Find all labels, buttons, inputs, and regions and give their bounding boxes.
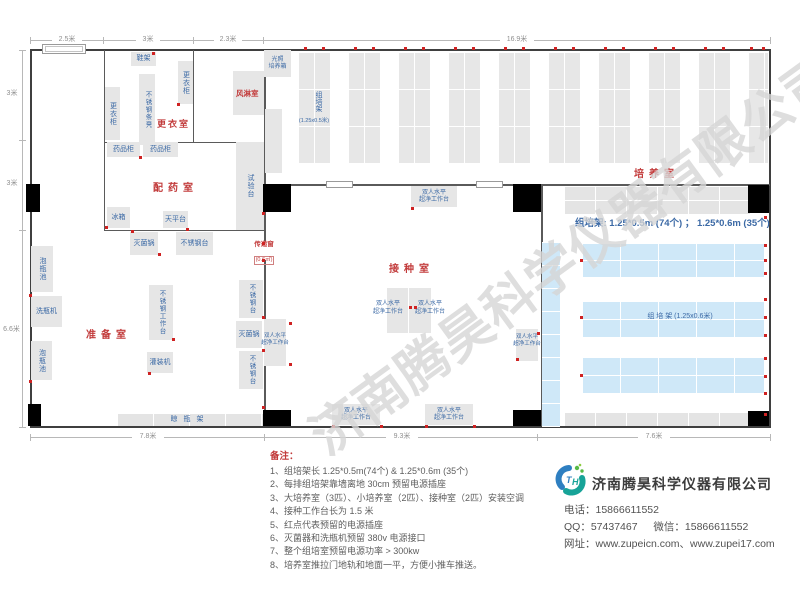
power-socket-dot: [572, 47, 575, 50]
power-socket-dot: [152, 52, 155, 55]
floor-plan-canvas: 2.5米 3米 2.3米 16.9米 3米 3米 6.6米 7.8米 9.3米 …: [0, 0, 800, 600]
equip-clean-bench-bottom-1: 双人水平 超净工作台: [332, 404, 380, 425]
note-item: 4、接种工作台长为 1.5 米: [270, 505, 535, 518]
power-socket-dot: [750, 47, 753, 50]
notes-title: 备注：: [270, 448, 535, 462]
clean-bench-line1: 双人水平: [344, 408, 368, 415]
culture-rack-column: [448, 52, 480, 163]
power-socket-dot: [158, 253, 161, 256]
notes-list: 1、组培架长 1.25*0.5m(74个) & 1.25*0.6m (35个) …: [270, 465, 535, 572]
power-socket-dot: [425, 425, 428, 428]
dim-label-top-4: 16.9米: [500, 36, 534, 44]
equip-ss-table: 不锈钢台: [176, 232, 213, 255]
web-value-1: www.zupeicn.com: [596, 538, 680, 550]
power-socket-dot: [580, 374, 583, 377]
door-block: [28, 404, 41, 426]
power-socket-dot: [762, 47, 765, 50]
dim-label-bottom-1: 7.8米: [132, 433, 164, 441]
power-socket-dot: [764, 392, 767, 395]
equip-medicine-cabinet-2: 药品柜: [143, 142, 178, 157]
power-socket-dot: [372, 47, 375, 50]
web-separator: 、: [680, 538, 691, 550]
power-socket-dot: [105, 226, 108, 229]
power-socket-dot: [764, 375, 767, 378]
clean-bench-left-label: 双人水平 超净工作台: [250, 333, 300, 346]
entry-door-symbol-inner: [45, 46, 83, 52]
note-item: 5、红点代表预留的电源插座: [270, 519, 535, 532]
power-socket-dot: [411, 207, 414, 210]
culture-shelf-top: [564, 186, 751, 214]
power-socket-dot: [404, 47, 407, 50]
power-socket-dot: [764, 357, 767, 360]
dim-line-left: [22, 50, 23, 428]
wechat-value: 15866611552: [685, 521, 748, 533]
power-socket-dot: [177, 103, 180, 106]
sliding-door-symbol: [476, 181, 503, 188]
power-socket-dot: [289, 363, 292, 366]
power-socket-dot: [764, 316, 767, 319]
culture-rack-column: [648, 52, 680, 163]
power-socket-dot: [604, 47, 607, 50]
clean-bench-line1: 双人水平: [422, 190, 446, 197]
power-socket-dot: [414, 306, 417, 309]
culture-rack-column: [398, 52, 430, 163]
equip-medicine-cabinet: 药品柜: [107, 142, 140, 157]
dim-tick: [19, 427, 26, 428]
culture-rack-column: [498, 52, 530, 163]
power-socket-dot: [764, 259, 767, 262]
notes-block: 备注： 1、组培架长 1.25*0.5m(74个) & 1.25*0.6m (3…: [270, 448, 535, 572]
power-socket-dot: [764, 298, 767, 301]
dim-tick: [770, 434, 771, 441]
power-socket-dot: [522, 47, 525, 50]
power-socket-dot: [704, 47, 707, 50]
power-socket-dot: [289, 322, 292, 325]
power-socket-dot: [262, 349, 265, 352]
power-socket-dot: [537, 332, 540, 335]
clean-bench-center1-label: 双人水平 超净工作台: [368, 301, 408, 316]
power-socket-dot: [672, 47, 675, 50]
dim-label-bottom-3: 7.6米: [638, 433, 670, 441]
note-item: 2、每排组培架靠墙离地 30cm 预留电源插座: [270, 478, 535, 491]
clean-bench-line1: 双人水平: [264, 333, 286, 339]
power-socket-dot: [764, 413, 767, 416]
dim-label-left-2: 3米: [4, 180, 20, 188]
company-phone-line: 电话：15866611552: [564, 502, 659, 517]
power-socket-dot: [764, 272, 767, 275]
equip-clean-bench-bottom-2: 双人水平 超净工作台: [425, 404, 473, 425]
power-socket-dot: [764, 244, 767, 247]
dim-tick: [264, 434, 265, 441]
power-socket-dot: [262, 316, 265, 319]
room-label-dispensing: 配药室: [153, 179, 198, 194]
power-socket-dot: [262, 259, 265, 262]
dim-tick: [19, 50, 26, 51]
clean-bench-line1: 双人水平: [418, 301, 442, 307]
note-item: 1、组培架长 1.25*0.5m(74个) & 1.25*0.6m (35个): [270, 465, 535, 478]
clean-bench-line2: 超净工作台: [513, 341, 541, 347]
culture-rack-column: [548, 52, 580, 163]
dim-tick: [19, 230, 26, 231]
note-item: 7、整个组培室预留电源功率 > 300kw: [270, 545, 535, 558]
wall-inner-v1: [104, 50, 105, 230]
equip-light-incubator-line1: 光照: [271, 57, 283, 64]
equip-fridge: 冰箱: [107, 207, 130, 228]
power-socket-dot: [580, 316, 583, 319]
clean-bench-line2: 超净工作台: [261, 340, 289, 346]
power-socket-dot: [516, 358, 519, 361]
rack-right-label: 组 培 架 (1.25x0.6米): [620, 313, 740, 321]
equip-ss-table-3: 不锈钢台: [239, 351, 263, 389]
power-socket-dot: [332, 425, 335, 428]
power-socket-dot: [764, 216, 767, 219]
room-label-changing: 更衣室: [157, 117, 190, 130]
power-socket-dot: [580, 259, 583, 262]
dim-tick: [263, 37, 264, 44]
equip-ss-table-2: 不锈钢台: [239, 280, 263, 318]
dim-tick: [537, 434, 538, 441]
equip-bottle-pool-2: 泡瓶池: [31, 341, 52, 380]
room-label-culture: 培养室: [634, 165, 679, 180]
clean-bench-line2: 超净工作台: [415, 309, 445, 315]
power-socket-dot: [409, 306, 412, 309]
clean-bench-line1: 双人水平: [376, 301, 400, 307]
dim-tick: [103, 37, 104, 44]
web-label: 网址：: [564, 538, 596, 550]
power-socket-dot: [139, 156, 142, 159]
culture-rack-blue-row-1: [582, 243, 764, 277]
logo-letter-h: H: [572, 477, 579, 487]
phone-label: 电话：: [564, 504, 596, 516]
power-socket-dot: [473, 425, 476, 428]
company-qq-line: QQ：57437467 微信：15866611552: [564, 519, 748, 534]
sliding-door-symbol: [326, 181, 353, 188]
equip-light-incubator: 光照 培养箱: [264, 50, 291, 77]
door-block: [263, 410, 291, 426]
equip-wardrobe-2: 更衣柜: [178, 61, 193, 104]
culture-shelf-bottom: [564, 412, 751, 426]
company-logo: T H: [554, 462, 588, 498]
power-socket-dot: [354, 47, 357, 50]
dim-label-top-2: 3米: [136, 36, 160, 44]
equip-wardrobe: 更衣柜: [105, 87, 120, 140]
culture-rack-blue-row-3: [582, 357, 764, 394]
note-item: 6、灭菌器和洗瓶机预留 380v 电源接口: [270, 532, 535, 545]
power-socket-dot: [654, 47, 657, 50]
wechat-label: 微信：: [653, 521, 685, 533]
rack-column-size-label: (1.25x0.5米): [293, 118, 335, 126]
dim-label-top-3: 2.3米: [214, 36, 242, 44]
clean-bench-line2: 超净工作台: [419, 197, 449, 204]
dim-tick: [30, 434, 31, 441]
power-socket-dot: [262, 406, 265, 409]
equip-drying-rack-label: 晾瓶架: [150, 416, 230, 424]
wall-outer-top: [30, 49, 771, 52]
equip-steel-bench: 不锈钢条凳: [139, 74, 155, 145]
dim-tick: [30, 37, 31, 44]
equip-clean-bench-top: 双人水平 超净工作台: [411, 186, 457, 207]
power-socket-dot: [622, 47, 625, 50]
note-item: 3、大培养室（3匹）、小培养室（2匹）、接种室（2匹）安装空调: [270, 492, 535, 505]
power-socket-dot: [148, 372, 151, 375]
power-socket-dot: [29, 380, 32, 383]
power-socket-dot: [131, 230, 134, 233]
power-socket-dot: [186, 228, 189, 231]
clean-bench-line1: 双人水平: [516, 334, 538, 340]
clean-bench-line1: 双人水平: [437, 408, 461, 415]
door-block: [748, 185, 769, 213]
clean-bench-line2: 超净工作台: [341, 415, 371, 422]
power-socket-dot: [29, 294, 32, 297]
door-block: [513, 184, 541, 212]
power-socket-dot: [554, 47, 557, 50]
power-socket-dot: [262, 212, 265, 215]
equip-filling-machine: 灌装机: [147, 352, 173, 373]
power-socket-dot: [322, 47, 325, 50]
culture-rack-column: [348, 52, 380, 163]
equip-bottle-washer: 洗瓶机: [31, 296, 62, 327]
qq-label: QQ：: [564, 521, 591, 533]
wall-inner-v2: [193, 50, 194, 142]
equip-test-bench: 试验台: [236, 142, 264, 230]
power-socket-dot: [172, 338, 175, 341]
rack-summary-label: 组培架: 1.25*0.5m (74个) ； 1.25*0.6m (35个): [575, 220, 775, 228]
equip-sterilizer: 灭菌锅: [130, 232, 158, 255]
power-socket-dot: [380, 425, 383, 428]
dim-label-top-1: 2.5米: [52, 36, 82, 44]
equip-light-incubator-line2: 培养箱: [268, 64, 286, 71]
power-socket-dot: [504, 47, 507, 50]
clean-bench-right-label: 双人水平 超净工作台: [505, 334, 549, 347]
wall-outer-right: [769, 49, 771, 428]
door-block: [513, 410, 541, 426]
entry-door-symbol: [42, 44, 86, 54]
room-label-inoculation: 接种室: [389, 260, 434, 275]
door-block: [26, 184, 40, 212]
dim-tick: [193, 37, 194, 44]
clean-bench-line2: 超净工作台: [434, 415, 464, 422]
power-socket-dot: [262, 242, 265, 245]
qq-value: 57437467: [591, 521, 638, 533]
equip-side-shelf: [265, 109, 282, 173]
door-block: [263, 184, 291, 212]
power-socket-dot: [764, 334, 767, 337]
company-web-line: 网址：www.zupeicn.com、www.zupei17.com: [564, 536, 775, 551]
dim-label-left-3: 6.6米: [1, 326, 22, 334]
culture-rack-column: [698, 52, 730, 163]
equip-ss-worktable: 不锈钢工作台: [149, 285, 173, 340]
equip-balance-table: 天平台: [163, 211, 188, 228]
web-value-2: www.zupei17.com: [690, 538, 775, 550]
power-socket-dot: [472, 47, 475, 50]
rack-column-label: 组培架: [306, 91, 322, 112]
power-socket-dot: [304, 47, 307, 50]
company-name: 济南腾昊科学仪器有限公司: [592, 474, 772, 494]
clean-bench-line2: 超净工作台: [373, 309, 403, 315]
power-socket-dot: [722, 47, 725, 50]
power-socket-dot: [422, 47, 425, 50]
power-socket-dot: [454, 47, 457, 50]
culture-rack-column: [748, 52, 768, 163]
room-label-air-shower: 风淋室: [236, 88, 259, 99]
dim-tick: [19, 140, 26, 141]
room-label-prep: 准备室: [86, 326, 131, 341]
phone-value: 15866611552: [596, 504, 659, 516]
dim-label-bottom-2: 9.3米: [386, 433, 418, 441]
equip-bottle-pool: 泡瓶池: [31, 246, 53, 292]
dim-label-left-1: 3米: [4, 90, 20, 98]
culture-rack-column: [598, 52, 630, 163]
dim-tick: [770, 37, 771, 44]
note-item: 8、培养室推拉门地轨和地面一平，方便小推车推送。: [270, 559, 535, 572]
